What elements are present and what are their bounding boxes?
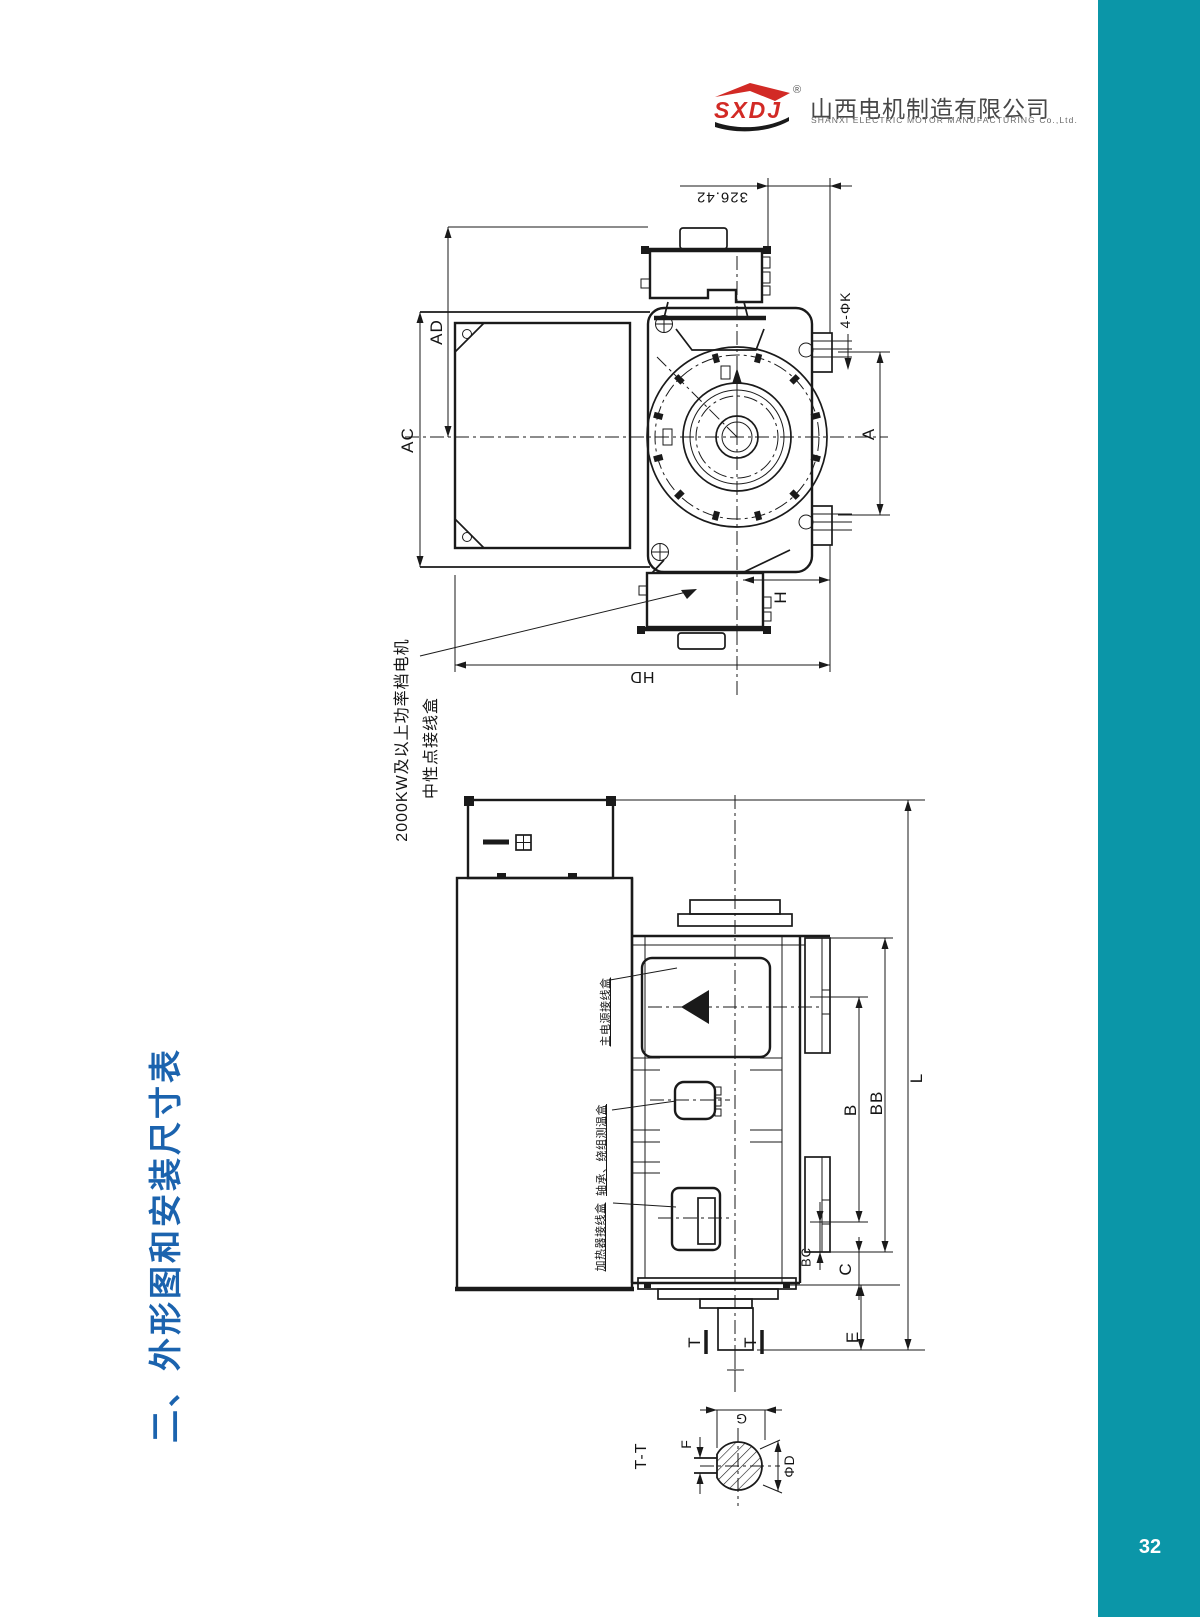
section-mark-t-left: T [685, 1336, 705, 1347]
side-view-drawing [455, 795, 925, 1380]
section-mark-t-right: T [741, 1336, 761, 1347]
shaft-section-view [694, 1355, 782, 1506]
note-heater-box: 加热器接线盒 [592, 1203, 608, 1272]
dim-bc: BC [799, 1247, 814, 1267]
note-neutral-box-line2: 中性点接线盒 [417, 697, 441, 799]
section-label-tt: T-T [633, 1443, 651, 1470]
dim-f: F [678, 1439, 694, 1449]
note-neutral-box-line1: 2000KW及以上功率档电机 [388, 638, 412, 841]
end-view-drawing [405, 178, 890, 695]
dim-h: H [771, 590, 791, 603]
dim-326-42: 326.42 [696, 189, 748, 206]
dim-c: C [836, 1262, 856, 1275]
dim-hd: HD [629, 667, 654, 685]
dim-e: E [843, 1331, 863, 1343]
dim-phi-d: ΦD [781, 1454, 797, 1477]
dim-bb: BB [867, 1091, 887, 1116]
dim-b: B [841, 1104, 861, 1116]
technical-drawing-lines [0, 0, 1200, 1617]
dim-g: G [735, 1411, 747, 1427]
dim-ac: AC [398, 427, 418, 453]
note-main-power-box: 主电源接线盒 [597, 978, 613, 1047]
note-temp-box: 轴承、绕组测温盒 [593, 1104, 609, 1196]
dim-ad: AD [427, 319, 447, 345]
dim-a: A [859, 428, 879, 440]
catalog-page: 32 SXDJ ® 山西电机制造有限公司 SHANXI ELECTRIC MOT… [0, 0, 1200, 1617]
dim-4-phi-k: 4-ΦK [837, 292, 853, 329]
dim-l: L [907, 1073, 927, 1083]
